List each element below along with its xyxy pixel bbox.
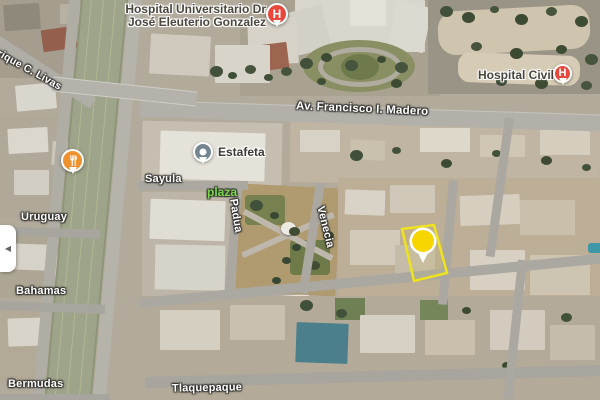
building	[550, 325, 595, 360]
restaurant-pin[interactable]	[61, 149, 84, 172]
tree-cluster	[300, 300, 313, 311]
street-label-bahamas: Bahamas	[16, 285, 66, 297]
building	[360, 315, 415, 353]
building	[437, 4, 591, 56]
street-label-sayula: Sayula	[145, 173, 182, 185]
gazebo	[281, 222, 296, 235]
building-teal-roof	[295, 322, 348, 364]
poi-label-estafeta[interactable]: Estafeta	[218, 146, 265, 159]
building	[300, 130, 340, 152]
building	[345, 189, 386, 215]
street-label-bermudas: Bermudas	[8, 378, 63, 390]
restaurant-icon	[66, 154, 79, 167]
tree-cluster	[350, 150, 363, 161]
building	[540, 130, 590, 155]
building	[7, 127, 48, 154]
building	[230, 305, 285, 340]
building	[160, 310, 220, 350]
road-bermudas	[0, 394, 110, 400]
building	[215, 45, 270, 83]
tree-cluster	[250, 200, 263, 211]
building	[3, 3, 41, 31]
street-label-tlaquepaque: Tlaquepaque	[172, 381, 242, 394]
hospital-pin-civil[interactable]: H	[553, 64, 572, 83]
swimming-pool	[588, 243, 600, 253]
hospital-pin-universitario[interactable]: H	[266, 3, 288, 25]
warehouse-roof	[149, 199, 225, 242]
street-label-uruguay: Uruguay	[21, 211, 67, 223]
building	[149, 33, 211, 76]
building	[14, 170, 49, 195]
tree-cluster	[300, 58, 313, 69]
tree-cluster	[210, 66, 223, 77]
building	[520, 200, 575, 235]
garden-patch	[341, 54, 379, 80]
building	[390, 185, 435, 213]
building	[425, 320, 475, 355]
poi-label-hospital-universitario[interactable]: Hospital Universitario Dr. José Eleuteri…	[124, 3, 270, 29]
estafeta-pin[interactable]	[193, 142, 213, 162]
poi-label-hospital-civil[interactable]: Hospital Civil	[478, 69, 554, 82]
satellite-map-canvas[interactable]: H H Hospital Universitario Dr. José Eleu…	[0, 0, 600, 400]
panel-collapse-button[interactable]: ◀	[0, 225, 16, 272]
building	[350, 230, 400, 265]
tree-cluster	[440, 6, 453, 17]
building	[420, 128, 470, 152]
park-label-plaza[interactable]: plaza	[207, 185, 237, 199]
warehouse-roof	[155, 244, 226, 290]
poi-label-line2: José Eleuterio Gonzalez	[124, 16, 270, 29]
hospital-tower	[350, 0, 386, 26]
